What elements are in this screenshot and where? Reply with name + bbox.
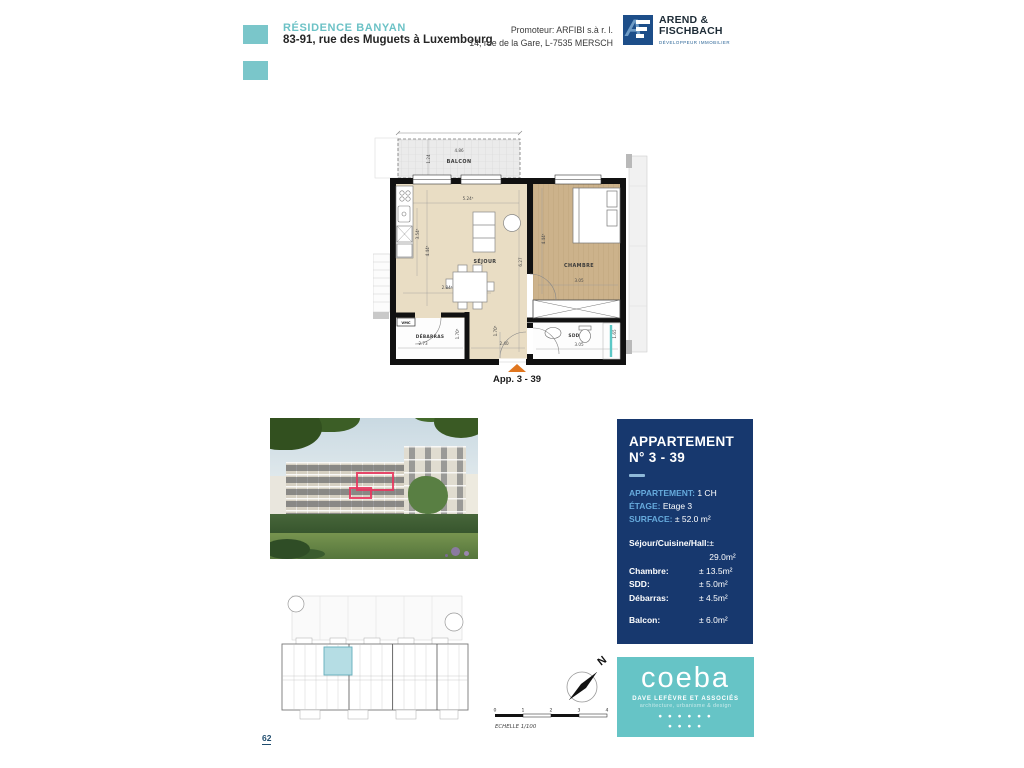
- room-area-row: Débarras: ± 4.5m²: [629, 592, 741, 606]
- dimension-label: 4.86: [454, 148, 464, 153]
- apartment-info-panel: APPARTEMENT N° 3 - 39 APPARTEMENT: 1 CH …: [617, 419, 753, 644]
- af-bar: [636, 20, 650, 24]
- panel-title-line2: N° 3 - 39: [629, 450, 741, 466]
- dimension-label: 1.65: [612, 329, 617, 339]
- dimension-label: 2.40: [499, 341, 509, 346]
- accent-square-top: [243, 25, 268, 44]
- foliage: [270, 418, 322, 450]
- room-area-row: Séjour/Cuisine/Hall: ± 29.0m²: [629, 537, 741, 564]
- info-row: ÉTAGE: Etage 3: [629, 500, 741, 513]
- dimension-label: 4.44⁵: [425, 245, 430, 256]
- af-bar: [636, 27, 647, 31]
- accent-square-bottom: [243, 61, 268, 80]
- promoter-line1: Promoteur: ARFIBI s.à r. l.: [433, 24, 613, 37]
- balcony-area-row: Balcon: ± 6.0m²: [629, 614, 741, 628]
- north-needle-icon: [569, 672, 597, 700]
- room-label: CHAMBRE: [564, 263, 594, 269]
- promoter-block: Promoteur: ARFIBI s.à r. l. 14, rue de l…: [433, 24, 613, 50]
- dimension-label: 5.24⁵: [463, 196, 474, 201]
- info-row: SURFACE: ± 52.0 m²: [629, 513, 741, 526]
- dimension-label: 2.73: [418, 341, 428, 346]
- bathroom-floor: [533, 323, 620, 359]
- coeba-wordmark: coeba: [617, 664, 754, 693]
- room-label: VMC: [401, 321, 411, 325]
- site-plan-svg: [272, 592, 477, 737]
- scale-tick-label: 0: [494, 708, 497, 714]
- dimension-label: 4.44⁵: [541, 233, 546, 244]
- scale-tick-label: 2: [550, 708, 553, 714]
- residence-title: RÉSIDENCE BANYAN: [283, 22, 406, 34]
- info-value: ± 52.0 m²: [675, 514, 711, 524]
- dimension-label: 3.05: [574, 342, 584, 347]
- info-value: Etage 3: [663, 501, 692, 511]
- building-rendering: [270, 418, 478, 559]
- info-value: 1 CH: [697, 488, 716, 498]
- room-areas-block: Séjour/Cuisine/Hall: ± 29.0m² Chambre: ±…: [629, 537, 741, 628]
- scale-caption: ECHELLE 1/100: [495, 724, 537, 730]
- scale-segment: [523, 714, 551, 717]
- flowers: [451, 547, 460, 556]
- tree-symbol: [445, 613, 463, 631]
- kitchen: [396, 186, 413, 258]
- arend-fischbach-logo: A AREND & FISCHBACH DÉVELOPPEUR IMMOBILI…: [623, 15, 730, 45]
- room-area-label: Balcon:: [629, 614, 699, 628]
- dots-row: ● ● ● ●: [617, 722, 754, 732]
- room-area-label: Débarras:: [629, 592, 699, 606]
- scale-segment: [495, 714, 523, 717]
- tree-symbol: [288, 596, 304, 612]
- room-area-value: ± 29.0m²: [709, 537, 741, 564]
- room-area-row: Chambre: ± 13.5m²: [629, 565, 741, 579]
- site-parcel: [292, 596, 462, 640]
- dimension-label: 2.84⁵: [442, 285, 453, 290]
- promoter-line2: 14, rue de la Gare, L-7535 MERSCH: [433, 37, 613, 50]
- scale-tick-label: 1: [522, 708, 525, 714]
- bed: [573, 188, 620, 243]
- info-label: ÉTAGE:: [629, 501, 660, 511]
- balcony: [396, 131, 522, 178]
- af-text-block: AREND & FISCHBACH DÉVELOPPEUR IMMOBILIER: [659, 15, 730, 45]
- foliage: [434, 418, 478, 438]
- room-label: BALCON: [447, 159, 472, 165]
- scale-tick-label: 3: [578, 708, 581, 714]
- room-area-value: ± 13.5m²: [699, 565, 732, 579]
- dimension-label: 6.27: [518, 257, 523, 267]
- af-tagline: DÉVELOPPEUR IMMOBILIER: [659, 40, 730, 45]
- coeba-subtitle: DAVE LEFÈVRE ET ASSOCIÉS: [617, 696, 754, 702]
- info-row: APPARTEMENT: 1 CH: [629, 487, 741, 500]
- panel-title-line1: APPARTEMENT: [629, 434, 741, 450]
- highlighted-unit: [324, 647, 352, 675]
- page-number: 62: [262, 733, 271, 745]
- scale-tick-label: 4: [606, 708, 609, 714]
- coeba-dots-pattern: ● ● ● ● ● ● ● ● ● ●: [617, 712, 754, 732]
- room-area-value: ± 5.0m²: [699, 578, 728, 592]
- north-label: N: [595, 654, 609, 668]
- dimension-label: 1.24: [426, 154, 431, 164]
- room-area-value: ± 4.5m²: [699, 592, 728, 606]
- dots-row: ● ● ● ● ● ●: [617, 712, 754, 722]
- apartment-number-label: App. 3 - 39: [493, 374, 541, 385]
- room-area-label: SDD:: [629, 578, 699, 592]
- coeba-logo-panel: coeba DAVE LEFÈVRE ET ASSOCIÉS architect…: [617, 657, 754, 737]
- room-area-row: SDD: ± 5.0m²: [629, 578, 741, 592]
- scale-segment: [579, 714, 607, 717]
- room-label: SÉJOUR: [474, 257, 497, 265]
- building-outline: [282, 638, 468, 719]
- info-label: SURFACE:: [629, 514, 672, 524]
- dimension-label: 3.05: [574, 278, 584, 283]
- dimension-label: 1.70⁵: [455, 328, 460, 339]
- af-name-line2: FISCHBACH: [659, 26, 730, 37]
- room-label: SDD: [568, 333, 579, 339]
- room-area-value: ± 6.0m²: [699, 614, 728, 628]
- dimension-label: 3.54⁵: [415, 228, 420, 239]
- apartment-highlight-outline: [349, 487, 372, 499]
- tree: [408, 476, 448, 514]
- dimension-label: 1.70⁵: [493, 325, 498, 336]
- panel-dash: [629, 474, 645, 477]
- room-area-label: Séjour/Cuisine/Hall:: [629, 537, 709, 564]
- coeba-tagline: architecture, urbanisme & design: [617, 703, 754, 709]
- building-left-wing: [286, 462, 406, 520]
- af-bar: [636, 34, 644, 38]
- floor-plan-svg: App. 3 - 39 BALCONSÉJOURCHAMBREDÉBARRASS…: [373, 126, 665, 386]
- scale-bar: 0 1 2 3 4 ECHELLE 1/100: [492, 705, 617, 735]
- wardrobe: [533, 300, 620, 318]
- room-area-label: Chambre:: [629, 565, 699, 579]
- scale-segment: [551, 714, 579, 717]
- info-label: APPARTEMENT:: [629, 488, 695, 498]
- af-monogram-icon: A: [623, 15, 653, 45]
